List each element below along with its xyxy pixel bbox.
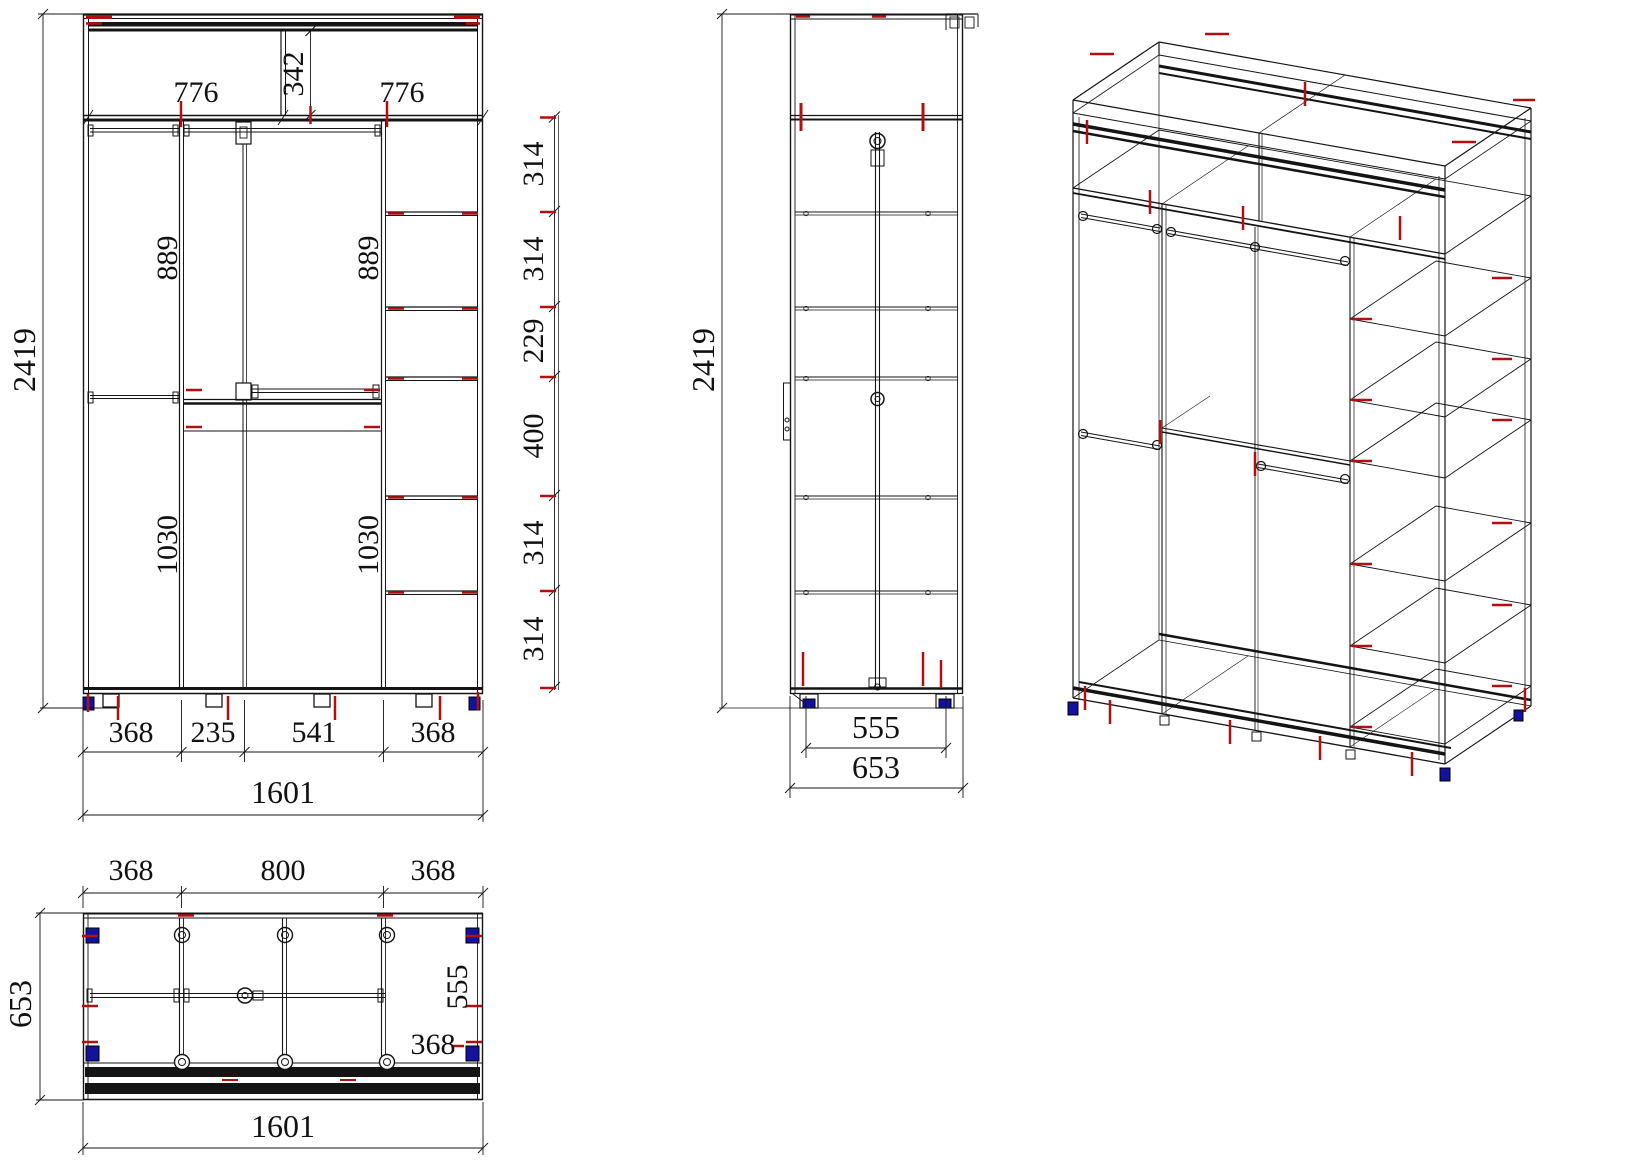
dim-front-hang-upper-right: 889 [354, 236, 384, 281]
dim-plan-right-width: 368 [411, 1030, 456, 1060]
wardrobe-assembly-drawing: 2419 776 776 342 889 889 1030 1030 314 3… [0, 0, 1648, 1164]
dim-front-shelf-2: 314 [519, 237, 549, 282]
side-right-foot [939, 699, 951, 708]
dim-plan-width-total: 1601 [251, 1110, 315, 1142]
dim-front-shelf-3: 229 [519, 319, 549, 364]
front-view-dimensions [38, 9, 560, 822]
isometric-view-linework [1068, 42, 1531, 781]
dim-front-bottom-3: 541 [292, 718, 337, 748]
dim-front-shelf-1: 314 [519, 142, 549, 187]
dim-front-hang-lower-left: 1030 [153, 515, 183, 575]
dim-front-shelf-6: 314 [519, 617, 549, 662]
dim-side-inner-depth: 555 [852, 711, 900, 743]
side-view-dimensions [717, 9, 968, 798]
dim-front-top-height: 342 [279, 52, 309, 97]
front-view-markers [86, 17, 556, 720]
iso-foot [1068, 702, 1078, 715]
dim-front-bottom-2: 235 [191, 718, 236, 748]
dim-front-bottom-1: 368 [109, 718, 154, 748]
dim-side-height-total: 2419 [687, 328, 719, 392]
iso-hanging-rods [1079, 212, 1350, 484]
dim-front-hang-upper-left: 889 [153, 236, 183, 281]
plan-hanging-rod [87, 988, 385, 1003]
dim-front-shelf-4: 400 [519, 414, 549, 459]
dim-front-top-width-left: 776 [174, 78, 219, 108]
side-support-rod [869, 132, 886, 690]
plan-view-linework [83, 913, 483, 1100]
side-view-linework [784, 14, 979, 708]
front-hanging-rods [88, 125, 381, 403]
front-view-linework [83, 14, 483, 710]
dim-plan-depth-total: 653 [4, 980, 36, 1028]
iso-foot [1514, 710, 1523, 721]
side-left-foot [803, 699, 815, 708]
dim-plan-top-3: 368 [411, 856, 456, 886]
dim-side-depth-total: 653 [852, 751, 900, 783]
iso-foot [1440, 768, 1450, 781]
plan-foot [86, 1046, 99, 1061]
dim-front-hang-lower-right: 1030 [354, 515, 384, 575]
dim-plan-top-1: 368 [109, 856, 154, 886]
dim-front-width-total: 1601 [251, 776, 315, 808]
drawing-linework [0, 0, 1648, 1164]
dim-front-bottom-4: 368 [411, 718, 456, 748]
dim-plan-inner-depth: 555 [443, 965, 473, 1010]
side-view-markers [785, 17, 941, 689]
dim-front-shelf-5: 314 [519, 521, 549, 566]
plan-foot [466, 1046, 479, 1061]
dim-front-top-width-right: 776 [380, 78, 425, 108]
front-right-shelves [386, 212, 478, 595]
plan-screws [175, 928, 395, 1070]
dim-plan-top-2: 800 [261, 856, 306, 886]
dim-front-height-total: 2419 [8, 328, 40, 392]
